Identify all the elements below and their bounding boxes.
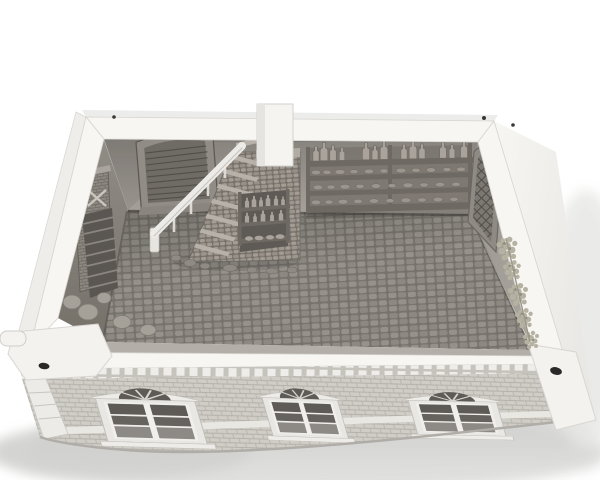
rim-pin-1 (112, 115, 116, 119)
cobblestone-floor (103, 210, 532, 350)
building-render (0, 0, 600, 480)
render-canvas (0, 0, 600, 480)
back-door (136, 131, 221, 216)
chimney-shade (257, 104, 265, 166)
front-facade (20, 364, 584, 452)
corner-peg (0, 331, 26, 346)
stair-bottle-rack (238, 189, 290, 252)
rim-pin-2 (482, 116, 486, 120)
rim-pin-3 (511, 123, 515, 127)
wall-shelf (306, 140, 476, 219)
